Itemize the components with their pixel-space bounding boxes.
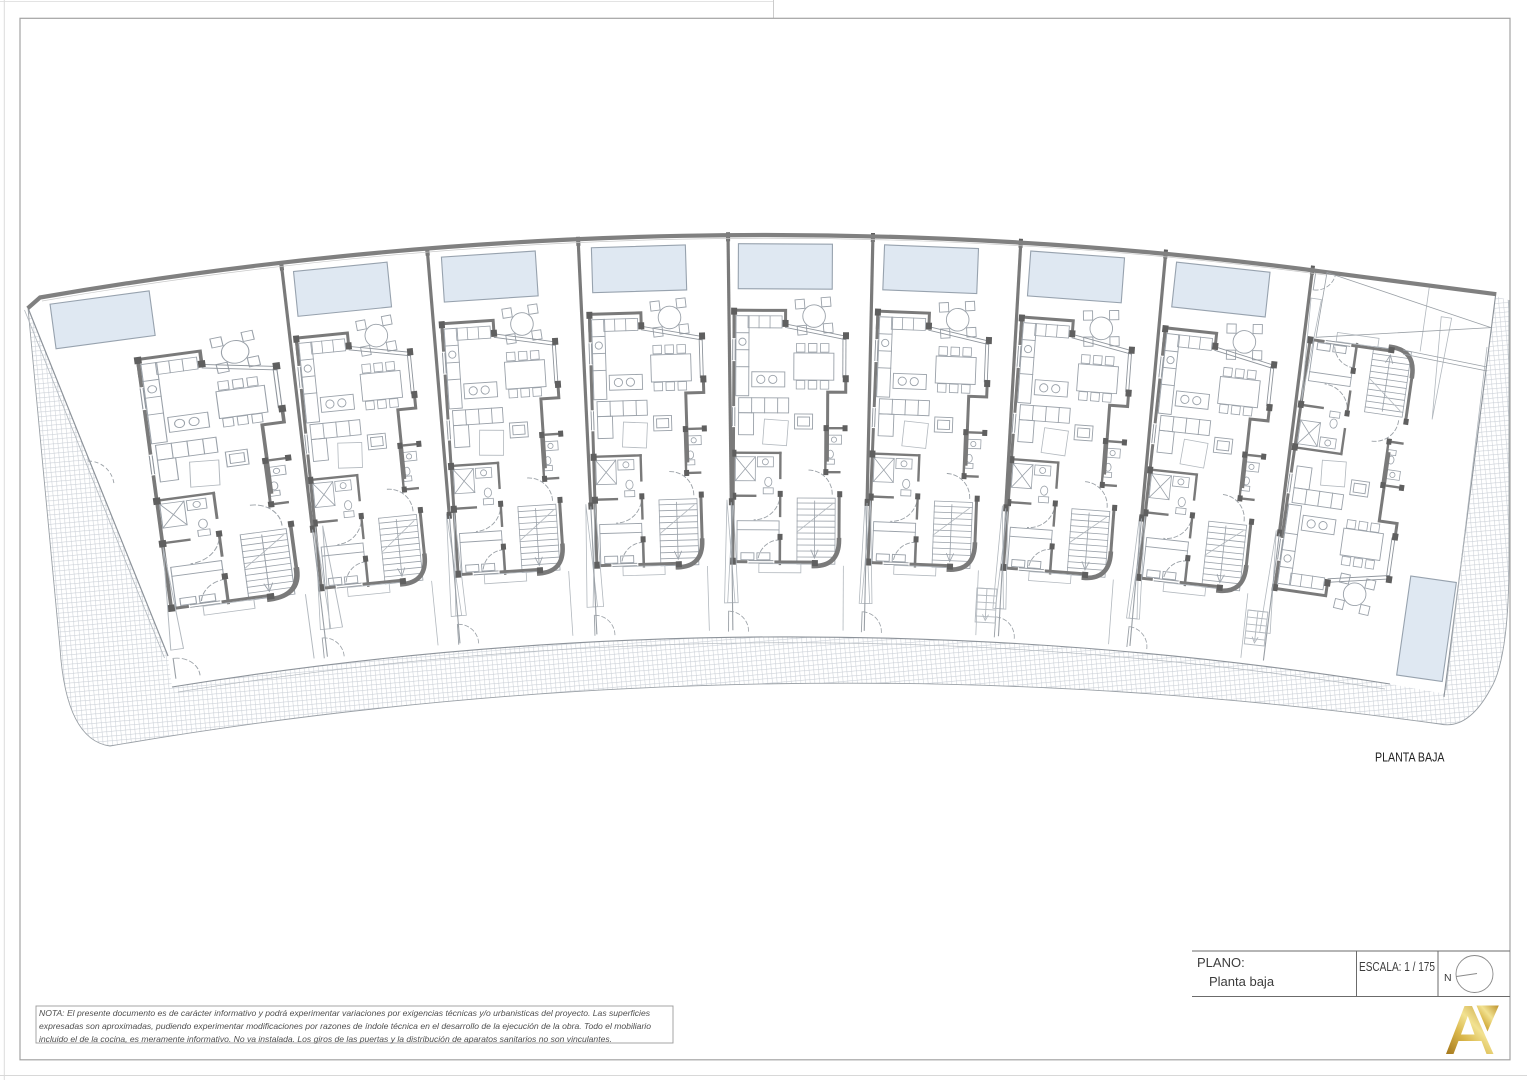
svg-text:ESCALA: 1 / 175: ESCALA: 1 / 175 xyxy=(1359,960,1435,974)
svg-text:Planta baja: Planta baja xyxy=(1209,974,1275,989)
svg-text:PLANO:: PLANO: xyxy=(1197,955,1245,970)
svg-text:NOTA: El presente documento es: NOTA: El presente documento es de caráct… xyxy=(39,1009,650,1018)
svg-text:expresadas son aproximadas, pu: expresadas son aproximadas, pudiendo exp… xyxy=(39,1022,651,1031)
svg-text:N: N xyxy=(1444,972,1452,984)
svg-text:incluido el de la cocina, es m: incluido el de la cocina, es meramente i… xyxy=(39,1035,612,1044)
svg-text:PLANTA BAJA: PLANTA BAJA xyxy=(1375,751,1445,765)
